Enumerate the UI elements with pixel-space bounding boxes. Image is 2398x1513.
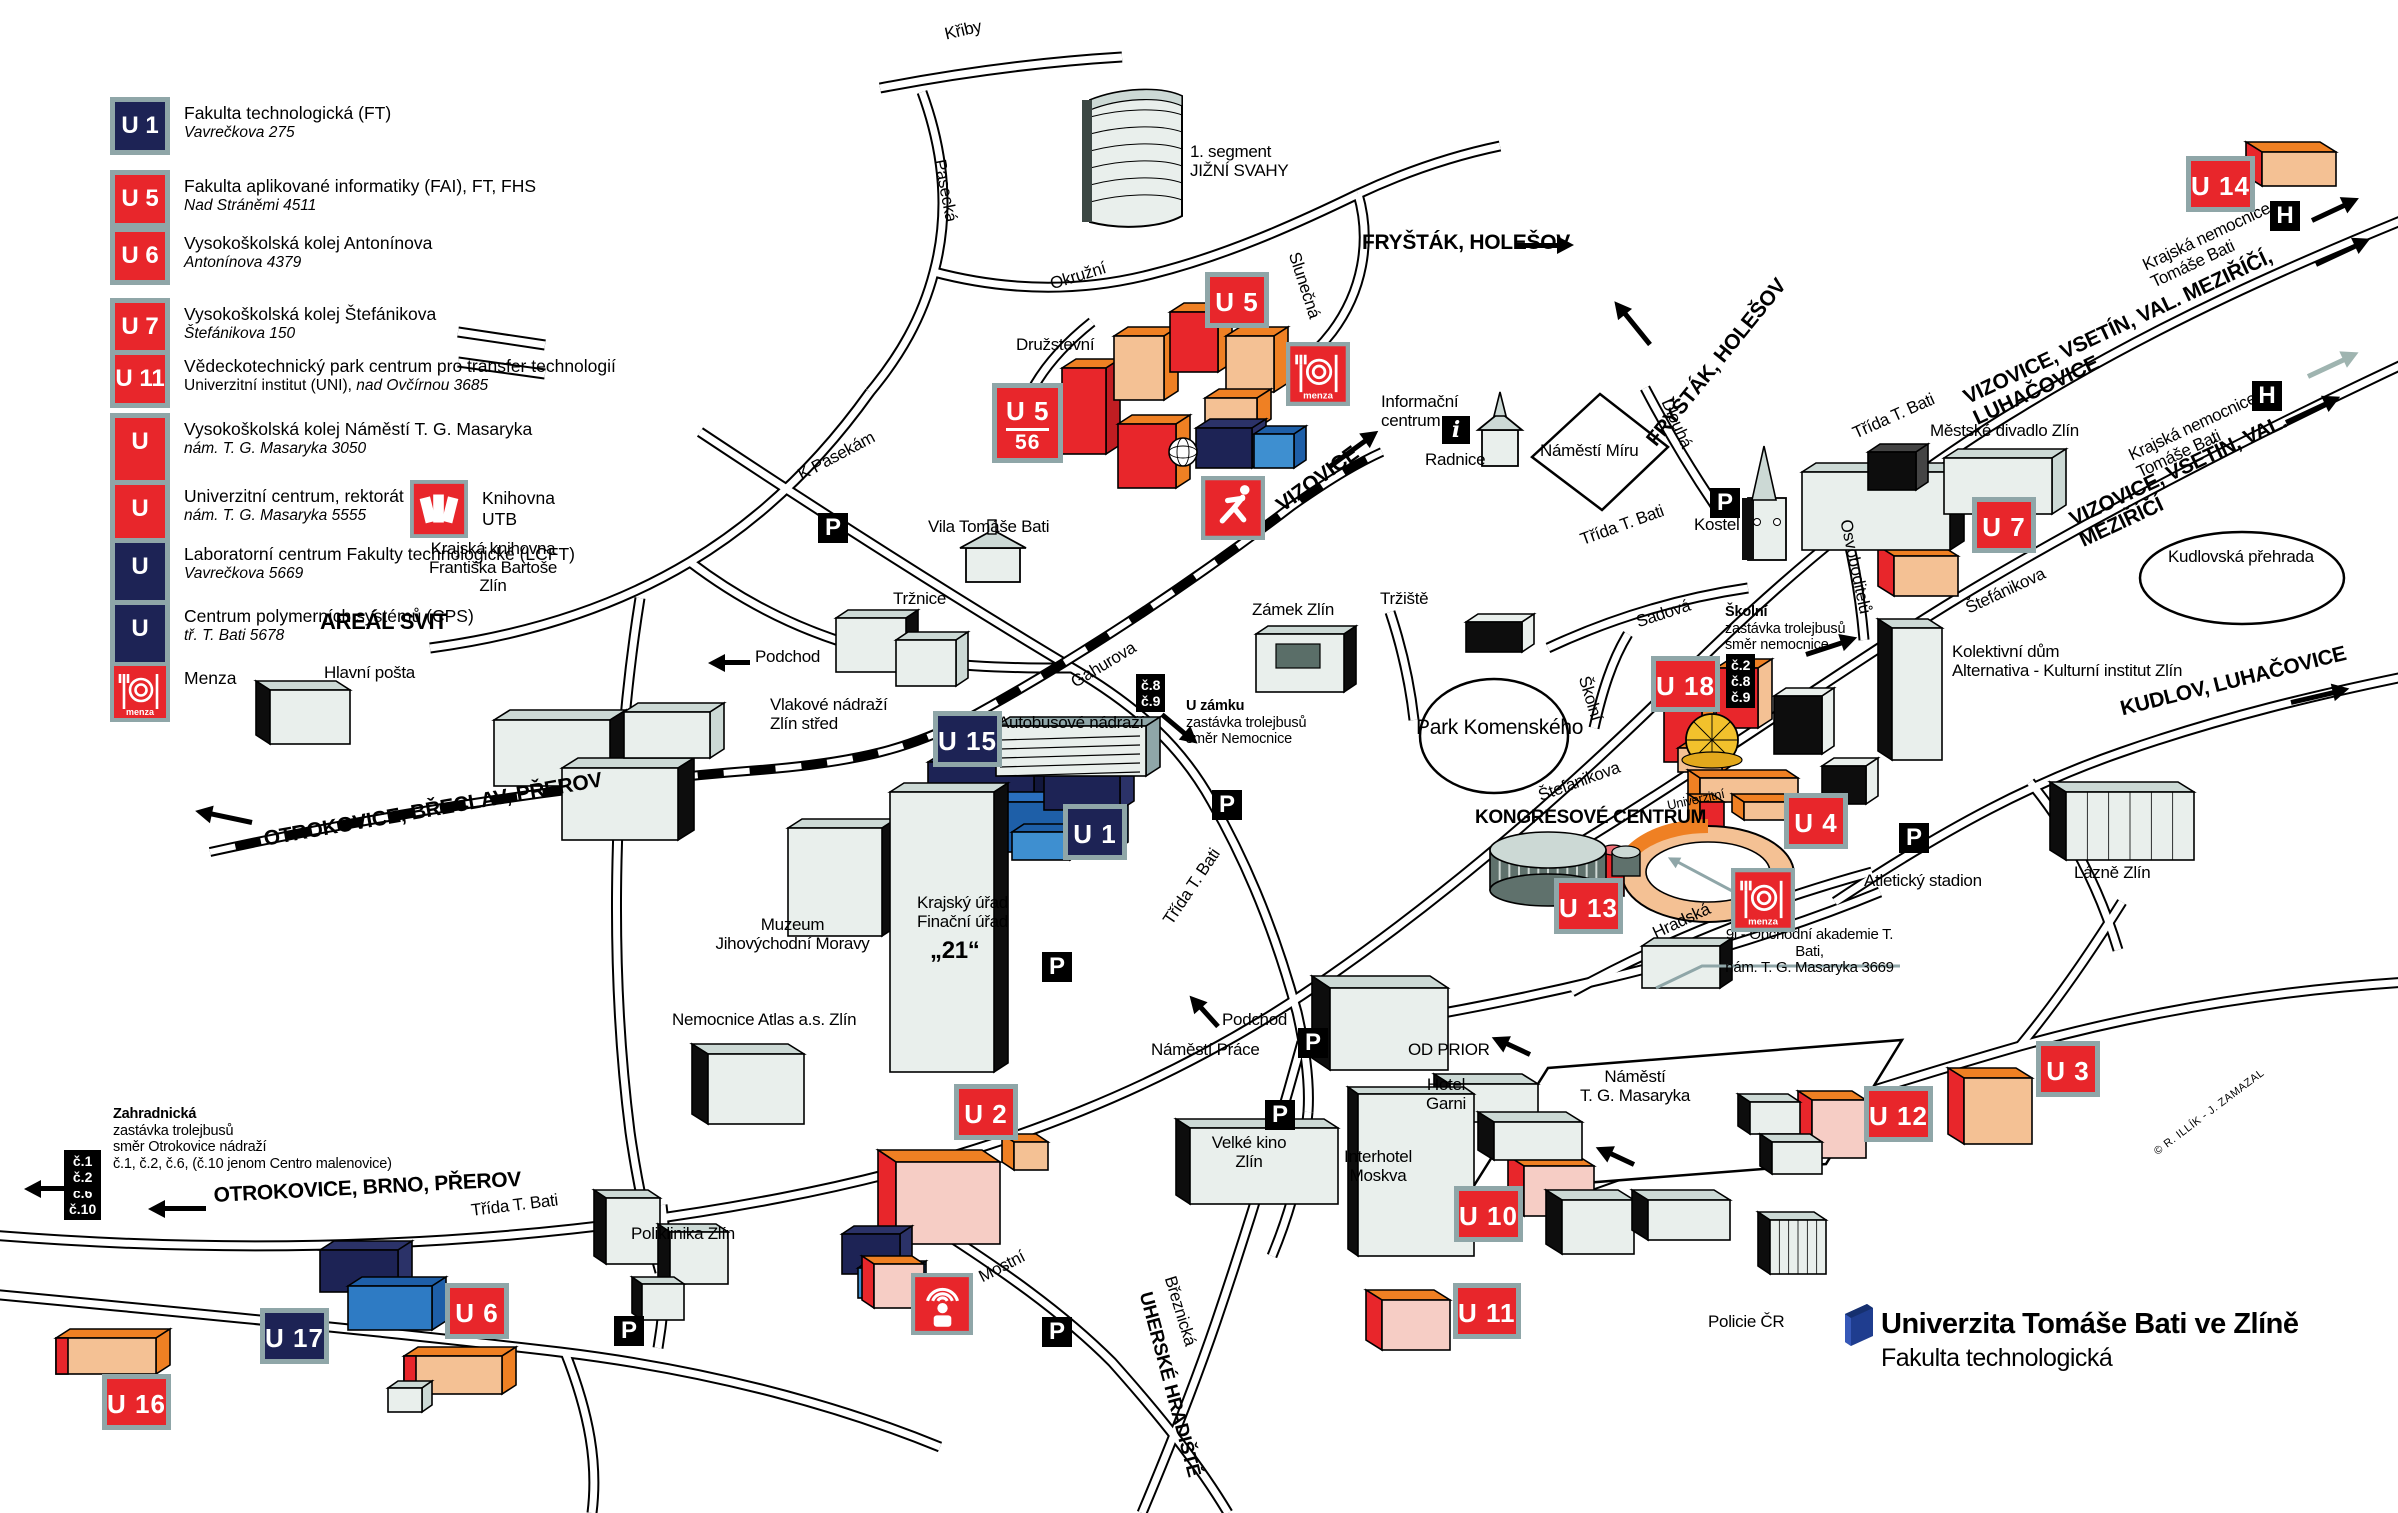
stop-zahradnicka-line: zastávka trolejbusů	[113, 1123, 392, 1140]
place-trznice: Tržnice	[893, 590, 946, 609]
badge-u5-label: U 5	[1210, 277, 1264, 323]
stop-u-zamku: U zámkuzastávka trolejbusůsměr Nemocnice	[1186, 698, 1306, 748]
badge-u5-56: U 556	[992, 383, 1063, 463]
lines-2-8-9: č.2č.8č.9	[1726, 654, 1755, 708]
legend-label: Menza	[184, 668, 644, 689]
lines-8-9: č.8č.9	[1136, 674, 1165, 712]
university-logo: Univerzita Tomáše Bati ve Zlíně Fakulta …	[1843, 1302, 1877, 1383]
legend-extra-label: Knihovna UTB	[482, 488, 555, 530]
legend-title: Centrum polymerních systémů (CPS)	[184, 606, 644, 627]
arrow-frystak-top	[1516, 243, 1558, 248]
badge-u7: U 7	[1972, 497, 2036, 553]
parking-icon: P	[1042, 1317, 1072, 1347]
building-nadrazi-c	[624, 703, 724, 758]
legend-address: tř. T. Bati 5678	[184, 627, 644, 646]
badge-u1: U 1	[1063, 804, 1127, 860]
lines-1-2-6-10-entry: č.1	[69, 1153, 96, 1169]
building-lazne	[2050, 782, 2194, 860]
place-kolektivni-dum: Kolektivní dům Alternativa - Kulturní in…	[1952, 643, 2182, 680]
building-u16	[56, 1329, 170, 1374]
building-u6-gray	[388, 1381, 432, 1412]
building-tgm-row-3	[1760, 1134, 1822, 1174]
legend-address: Nad Stráněmi 4511	[184, 197, 644, 216]
badge-u16: U 16	[102, 1374, 171, 1430]
stop-u-zamku-line: směr Nemocnice	[1186, 731, 1306, 748]
place-zamek-zlin: Zámek Zlín	[1252, 601, 1334, 620]
place-lazne-zlin: Lázně Zlín	[2074, 864, 2150, 883]
menza-icon: menza	[1731, 868, 1795, 937]
badge-u7-label: U 7	[1977, 502, 2031, 548]
building-pk-box	[1466, 614, 1534, 652]
legend-label: Fakulta aplikované informatiky (FAI), FT…	[184, 176, 644, 216]
lines-8-9-entry: č.8	[1141, 677, 1160, 693]
badge-u15: U 15	[933, 711, 1002, 767]
building-tgm-row-1	[1632, 1190, 1730, 1240]
legend-label: Laboratorní centrum Fakulty technologick…	[184, 544, 644, 584]
badge-u12-label: U 12	[1869, 1091, 1928, 1137]
place-radnice: Radnice	[1425, 451, 1485, 470]
parking-icon: P	[1710, 488, 1740, 518]
place-autobusove-nadrazi: Autobusové nádraží	[998, 714, 1144, 733]
building-zamek	[1256, 626, 1356, 692]
place-namesti-prace: Náměstí Práce	[1151, 1041, 1260, 1060]
legend-badge-u1: U 1	[110, 97, 170, 155]
place-dvacet-jedna: „21“	[930, 938, 980, 964]
badge-u2-label: U 2	[959, 1089, 1013, 1135]
parking-icon: P	[1899, 823, 1929, 853]
badge-u15-label: U 15	[938, 716, 997, 762]
badge-u18-label: U 18	[1656, 661, 1715, 707]
menza-icon: menza	[110, 662, 170, 727]
lines-1-2-6-10-entry: č.10	[69, 1201, 96, 1217]
campus-map: KřibyPasecká1. segment JIŽNÍ SVAHYFRYŠTÁ…	[0, 0, 2398, 1513]
library-books-icon	[410, 480, 468, 543]
sport-hall-icon	[1201, 476, 1265, 545]
building-trznice-b	[896, 632, 968, 686]
legend-badge-u5: U 5	[110, 170, 170, 228]
building-jizni-svahy-segment	[1082, 90, 1182, 227]
place-krajsky-urad: Krajský úřad Finační úřad	[905, 894, 1020, 931]
stop-u-zamku-line: zastávka trolejbusů	[1186, 715, 1306, 732]
parking-icon: P	[1212, 790, 1242, 820]
legend-title: Vysokoškolská kolej Náměstí T. G. Masary…	[184, 419, 644, 440]
legend-label: Vysokoškolská kolej AntonínovaAntonínova…	[184, 233, 644, 273]
legend-badge-u11: U 11	[110, 350, 170, 408]
building-u11	[1366, 1290, 1450, 1350]
building-u14	[2246, 142, 2336, 186]
place-velke-kino: Velké kino Zlín	[1194, 1134, 1304, 1171]
menza-icon: menza	[1286, 342, 1350, 411]
svg-text:menza: menza	[1748, 917, 1779, 928]
place-vlakove-nadrazi: Vlakové nádraží Zlín střed	[770, 696, 887, 733]
building-u17-b	[348, 1277, 446, 1330]
place-muzeum: Muzeum Jihovýchodní Moravy	[700, 916, 885, 953]
lines-2-8-9-entry: č.2	[1731, 657, 1750, 673]
logo-faculty-name: Fakulta technologická	[1881, 1344, 2112, 1373]
place-hotel-garni: Hotel Garni	[1411, 1076, 1481, 1113]
place-policie-cr: Policie ČR	[1708, 1313, 1784, 1332]
legend-title: Laboratorní centrum Fakulty technologick…	[184, 544, 644, 565]
street-trziste: Tržiště	[1380, 590, 1428, 609]
building-u5-b	[1114, 327, 1178, 400]
building-nadrazi-b	[562, 758, 694, 840]
place-kostel: Kostel	[1694, 516, 1739, 535]
place-poliklinika-zlin: Poliklinika Zlín	[631, 1225, 735, 1244]
place-interhotel-moskva: Interhotel Moskva	[1328, 1148, 1428, 1185]
stop-zahradnicka: Zahradnickázastávka trolejbusůsměr Otrok…	[113, 1106, 392, 1173]
legend-title: Vědeckotechnický park centrum pro transf…	[184, 356, 644, 377]
legend-address: Univerzitní institut (UNI), nad Ovčírnou…	[184, 377, 644, 396]
arrow-podchod-1	[724, 660, 750, 665]
badge-u13: U 13	[1554, 878, 1623, 934]
place-podchod-1: Podchod	[755, 648, 820, 667]
legend-address: Štefánikova 150	[184, 325, 644, 344]
legend-title: Fakulta technologická (FT)	[184, 103, 644, 124]
parking-icon: P	[614, 1316, 644, 1346]
badge-u18: U 18	[1651, 656, 1720, 712]
lines-2-8-9-entry: č.9	[1731, 689, 1750, 705]
parking-icon: P	[1298, 1028, 1328, 1058]
badge-u10-label: U 10	[1459, 1191, 1518, 1237]
legend-badge-u7: U 7	[110, 298, 170, 356]
place-nemocnice-atlas: Nemocnice Atlas a.s. Zlín	[672, 1011, 856, 1030]
place-podchod-2: Podchod	[1222, 1011, 1287, 1030]
place-jizni-svahy: 1. segment JIŽNÍ SVAHY	[1190, 143, 1288, 180]
hospital-icon: H	[2252, 381, 2282, 411]
building-u16-end	[56, 1338, 68, 1374]
building-nemocnice-atlas	[692, 1044, 804, 1124]
badge-u5-56-sub-label: 56	[997, 431, 1058, 458]
badge-u5: U 5	[1205, 272, 1269, 328]
svg-text:menza: menza	[126, 707, 155, 717]
stop-skolni-line: zastávka trolejbusů	[1725, 621, 1845, 638]
place-od-prior: OD PRIOR	[1408, 1041, 1490, 1060]
place-vila-tomase-bati: Vila Tomáše Bati	[928, 518, 1049, 537]
badge-u6-label: U 6	[450, 1288, 504, 1334]
legend-title: Vysokoškolská kolej Antonínova	[184, 233, 644, 254]
place-park-komenskeho: Park Komenského	[1416, 716, 1583, 739]
legend-label: Vysokoškolská kolej ŠtefánikovaŠtefániko…	[184, 304, 644, 344]
building-u5-a	[1062, 359, 1120, 454]
place-atleticky-stadion: Atletický stadion	[1864, 872, 1982, 891]
lines-2-8-9-entry: č.8	[1731, 673, 1750, 689]
badge-u4: U 4	[1784, 793, 1848, 849]
legend-label: Vědeckotechnický park centrum pro transf…	[184, 356, 644, 396]
parking-icon: P	[1042, 952, 1072, 982]
svg-text:menza: menza	[1303, 391, 1334, 402]
stop-zahradnicka-line: č.1, č.2, č.6, (č.10 jenom Centro maleno…	[113, 1156, 392, 1173]
parking-icon: P	[818, 513, 848, 543]
logo-university-name: Univerzita Tomáše Bati ve Zlíně	[1881, 1308, 2299, 1341]
kostel-church	[1742, 446, 1786, 560]
legend-address-prefix: Univerzitní institut (UNI),	[184, 377, 356, 394]
legend-extra-knihovna: Knihovna UTB	[410, 480, 555, 543]
badge-u5-56-label: U 5	[1006, 388, 1049, 431]
legend-label: Fakulta technologická (FT)Vavrečkova 275	[184, 103, 644, 143]
badge-u14-label: U 14	[2191, 161, 2250, 207]
building-u7	[1878, 546, 1958, 596]
lines-8-9-entry: č.9	[1141, 693, 1160, 709]
legend-title: Vysokoškolská kolej Štefánikova	[184, 304, 644, 325]
place-namesti-miru: Náměstí Míru	[1540, 442, 1638, 461]
auditorium-icon	[911, 1273, 973, 1340]
arrow-zahradnicka	[40, 1186, 98, 1191]
place-kudlovska-prehrada: Kudlovská přehrada	[2168, 548, 2314, 567]
legend-label: Centrum polymerních systémů (CPS)tř. T. …	[184, 606, 644, 646]
badge-u17-label: U 17	[265, 1313, 324, 1359]
badge-u11-label: U 11	[1458, 1288, 1516, 1334]
badge-u1-label: U 1	[1068, 809, 1122, 855]
building-garni-2	[1478, 1112, 1582, 1160]
hospital-icon: H	[2270, 201, 2300, 231]
lines-1-2-6-10-entry: č.2	[69, 1169, 96, 1185]
legend-title: Menza	[184, 668, 644, 689]
building-sportovni-hala-2	[1254, 426, 1306, 468]
badge-u11: U 11	[1453, 1283, 1521, 1339]
building-policie	[1758, 1212, 1826, 1274]
stop-zahradnicka-line: směr Otrokovice nádraží	[113, 1139, 392, 1156]
building-poliklinika-c	[632, 1277, 684, 1320]
stop-u-zamku-line: U zámku	[1186, 698, 1306, 715]
badge-u10: U 10	[1454, 1186, 1523, 1242]
building-u5-d	[1226, 327, 1288, 392]
legend-address: Vavrečkova 275	[184, 124, 644, 143]
building-divadlo-c	[1868, 444, 1928, 490]
building-tgm-row-2	[1738, 1094, 1800, 1134]
badge-u14: U 14	[2186, 156, 2255, 212]
badge-u4-label: U 4	[1789, 798, 1843, 844]
building-u10-b	[1546, 1190, 1634, 1254]
building-kolektivni-dum	[1878, 619, 1942, 760]
arrow-otrokovice-brno	[164, 1206, 206, 1211]
legend-label: Vysokoškolská kolej Náměstí T. G. Masary…	[184, 419, 644, 459]
badge-u16-label: U 16	[107, 1379, 166, 1425]
building-u3	[1948, 1068, 2032, 1144]
stop-skolni-line: Školní	[1725, 604, 1845, 621]
stop-zahradnicka-line: Zahradnická	[113, 1106, 392, 1123]
badge-u17: U 17	[260, 1308, 329, 1364]
badge-u2: U 2	[954, 1084, 1018, 1140]
badge-u3-label: U 3	[2041, 1046, 2095, 1092]
sports-hall-sphere	[1169, 438, 1197, 466]
legend-badge-u6: U 6	[110, 227, 170, 285]
badge-u12: U 12	[1864, 1086, 1933, 1142]
building-stadion-tower-1	[1774, 688, 1834, 754]
place-namesti-tgm: Náměstí T. G. Masaryka	[1560, 1068, 1710, 1105]
place-mestske-divadlo: Městské divadlo Zlín	[1930, 422, 2079, 441]
map-base-layer	[0, 0, 2398, 1513]
building-hlavni-posta	[256, 681, 350, 744]
logo-book-icon	[1843, 1302, 1877, 1378]
legend-title: Fakulta aplikované informatiky (FAI), FT…	[184, 176, 644, 197]
parking-icon: P	[1265, 1100, 1295, 1130]
information-icon: i	[1442, 416, 1470, 444]
badge-u13-label: U 13	[1559, 883, 1618, 929]
badge-u3: U 3	[2036, 1041, 2100, 1097]
badge-u6: U 6	[445, 1283, 509, 1339]
legend-address: nám. T. G. Masaryka 3050	[184, 440, 644, 459]
street-druzstevni: Družstevní	[1016, 336, 1094, 355]
legend-address: Vavrečkova 5669	[184, 565, 644, 584]
legend-address: Antonínova 4379	[184, 254, 644, 273]
